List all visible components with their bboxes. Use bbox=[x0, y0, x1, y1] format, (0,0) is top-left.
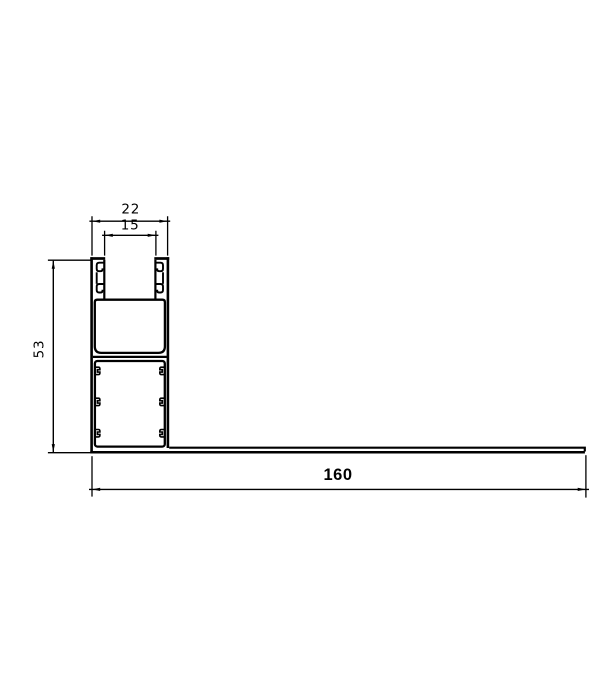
lower-chamber bbox=[95, 361, 165, 447]
dim-160-arrow-right bbox=[578, 488, 586, 491]
dimension-height: 53 bbox=[31, 260, 91, 453]
upper-chamber bbox=[95, 300, 165, 353]
dim-53-arrow-top bbox=[52, 261, 55, 269]
dimension-base-length: 160 bbox=[89, 455, 589, 497]
drawing-canvas: 22 15 53 160 bbox=[0, 0, 612, 700]
snap-hooks-left bbox=[97, 260, 105, 300]
dim-22-arrow-right bbox=[159, 220, 167, 223]
dim-160-arrow-left bbox=[92, 488, 100, 491]
flange-top-edge bbox=[169, 448, 585, 452]
dim-15-label: 15 bbox=[121, 218, 140, 234]
profile-drawing: 22 15 53 160 bbox=[0, 0, 612, 700]
dim-22-label: 22 bbox=[121, 201, 140, 217]
dim-53-arrow-bottom bbox=[52, 444, 55, 452]
dim-22-arrow-left bbox=[92, 220, 100, 223]
dim-15-arrow-right bbox=[148, 234, 156, 237]
snap-hooks-right bbox=[155, 260, 163, 300]
screw-notches bbox=[95, 367, 165, 437]
profile-section bbox=[90, 257, 585, 452]
dim-160-label: 160 bbox=[323, 466, 352, 484]
dimension-slot-width: 15 bbox=[102, 218, 158, 256]
dim-15-arrow-left bbox=[105, 234, 113, 237]
dim-53-label: 53 bbox=[31, 340, 47, 359]
